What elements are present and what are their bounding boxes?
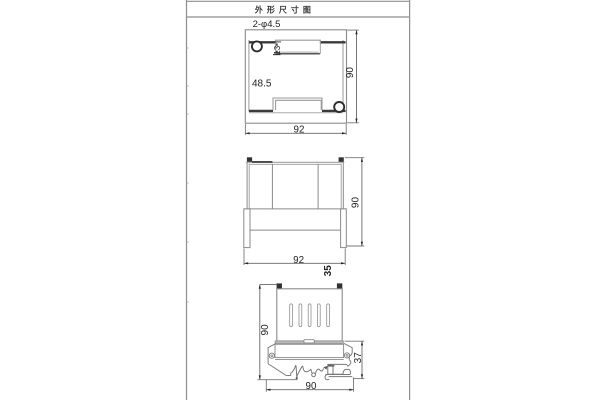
svg-text:92: 92 xyxy=(294,124,305,135)
svg-text:90: 90 xyxy=(306,381,317,392)
svg-text:48.5: 48.5 xyxy=(252,79,272,90)
svg-text:37: 37 xyxy=(353,352,364,364)
svg-text:35: 35 xyxy=(323,265,334,277)
svg-text:外形尺寸图: 外形尺寸图 xyxy=(255,5,315,15)
svg-text:90: 90 xyxy=(351,197,362,209)
svg-text:90: 90 xyxy=(345,67,356,79)
svg-text:2-φ4.5: 2-φ4.5 xyxy=(253,19,281,30)
svg-text:13: 13 xyxy=(273,45,282,54)
svg-text:92: 92 xyxy=(293,255,304,266)
svg-text:90: 90 xyxy=(260,324,271,336)
